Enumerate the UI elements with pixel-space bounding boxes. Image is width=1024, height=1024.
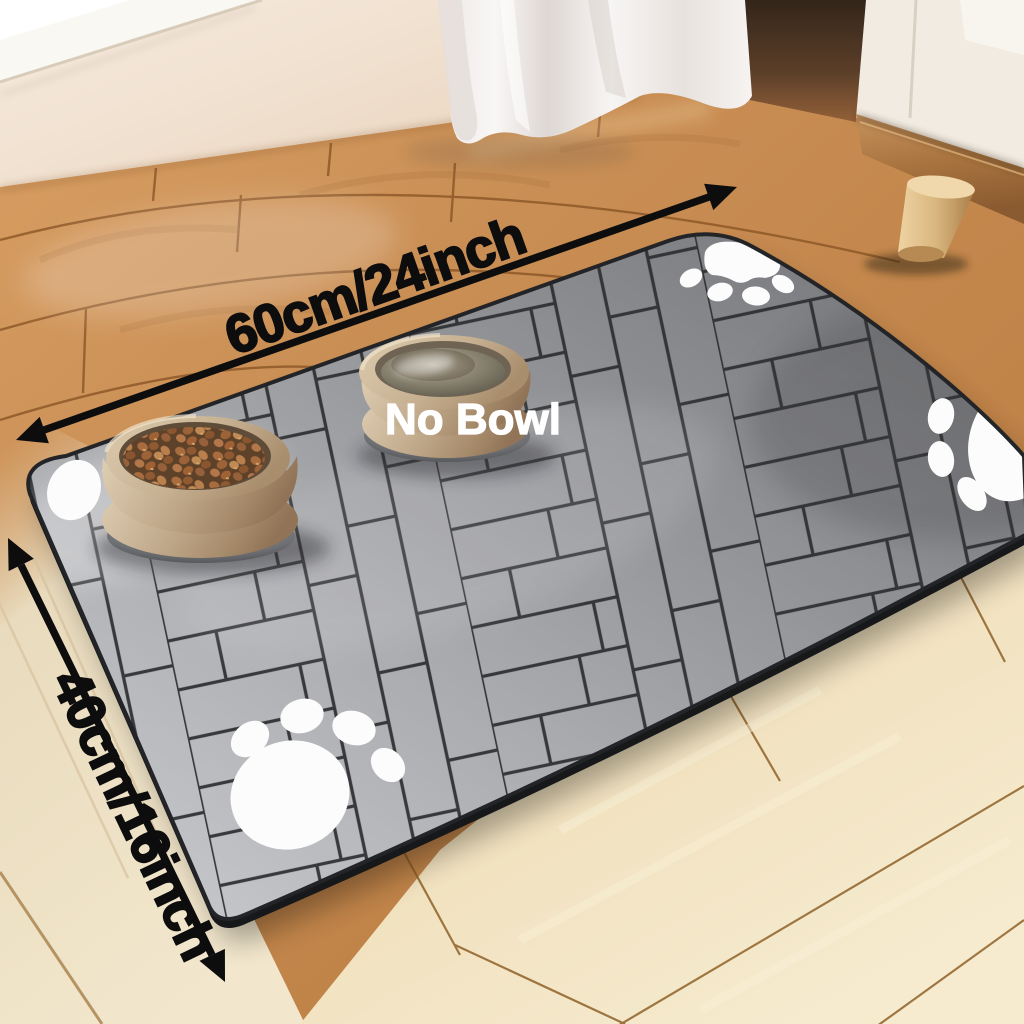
- scene: 60cm/24inch 40cm/16inch No Bowl: [0, 0, 1024, 1024]
- kibble: [123, 427, 265, 489]
- product-photo-pet-feeding-mat: 60cm/24inch 40cm/16inch No Bowl: [0, 0, 1024, 1024]
- no-bowl-label: No Bowl: [385, 395, 561, 444]
